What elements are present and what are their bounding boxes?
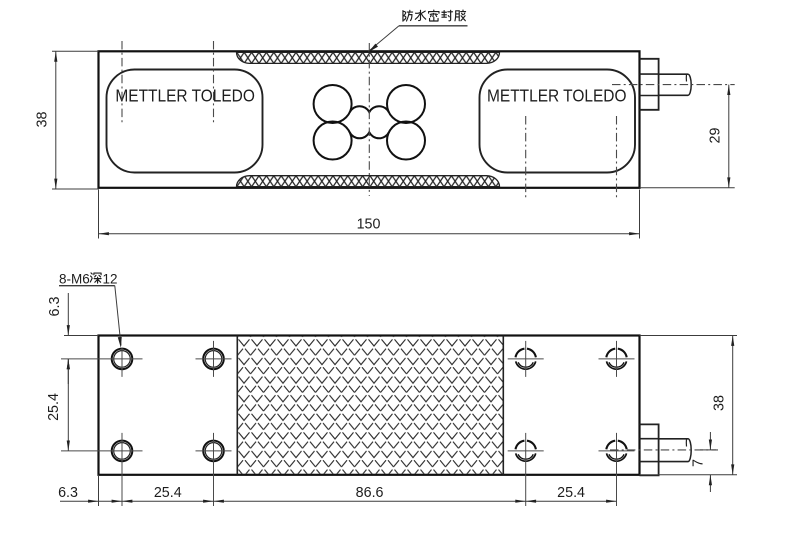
svg-text:38: 38 <box>35 112 51 128</box>
svg-text:29: 29 <box>707 128 723 144</box>
svg-text:8-M6: 8-M6 <box>59 271 90 286</box>
svg-text:12: 12 <box>103 271 118 286</box>
svg-text:38: 38 <box>712 395 728 411</box>
svg-text:6.3: 6.3 <box>47 297 63 317</box>
svg-text:METTLER TOLEDO: METTLER TOLEDO <box>487 86 627 106</box>
svg-text:25.4: 25.4 <box>557 485 585 501</box>
svg-text:METTLER TOLEDO: METTLER TOLEDO <box>115 86 255 106</box>
svg-text:150: 150 <box>357 217 381 233</box>
svg-text:6.3: 6.3 <box>58 485 78 501</box>
svg-text:25.4: 25.4 <box>154 485 182 501</box>
svg-text:25.4: 25.4 <box>46 393 62 421</box>
svg-text:7: 7 <box>691 459 707 467</box>
svg-text:86.6: 86.6 <box>356 485 384 501</box>
